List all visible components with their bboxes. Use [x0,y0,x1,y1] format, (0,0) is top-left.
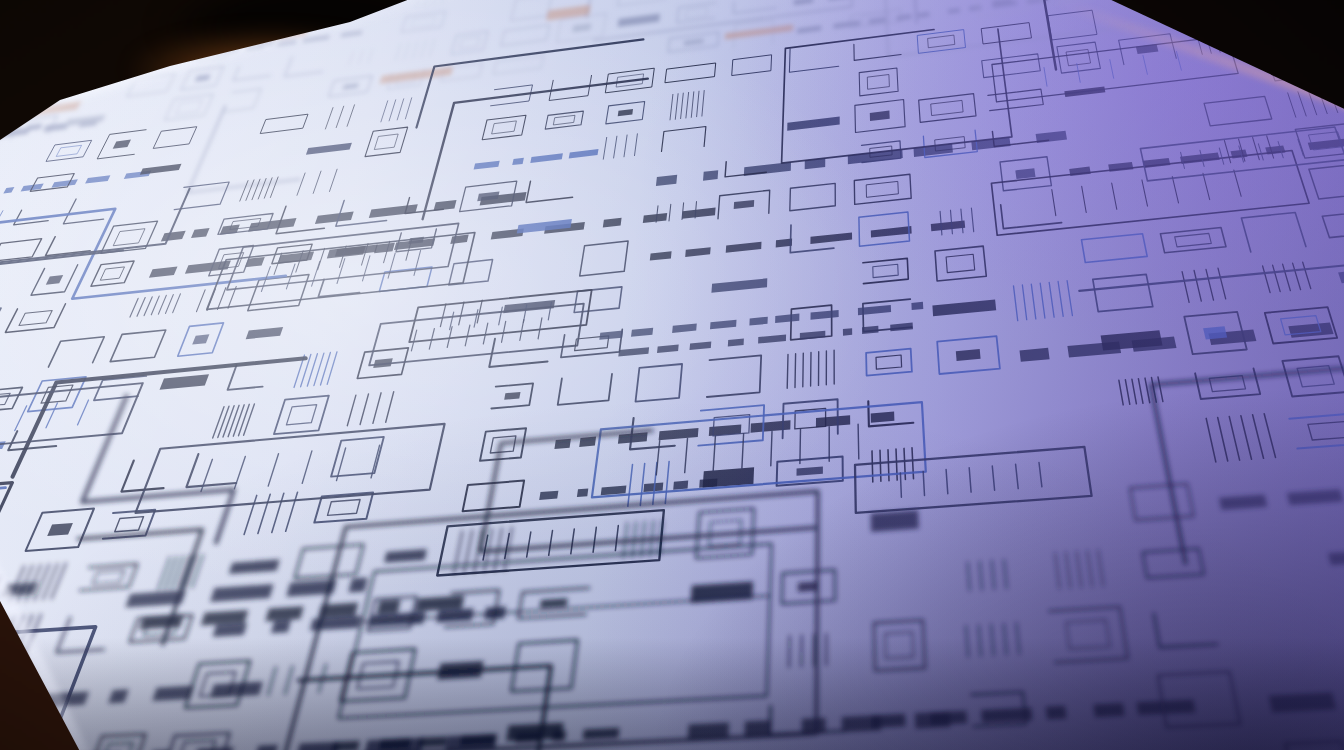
photo-blueprint-scene [0,0,1344,750]
blueprint-linework [0,0,1344,750]
